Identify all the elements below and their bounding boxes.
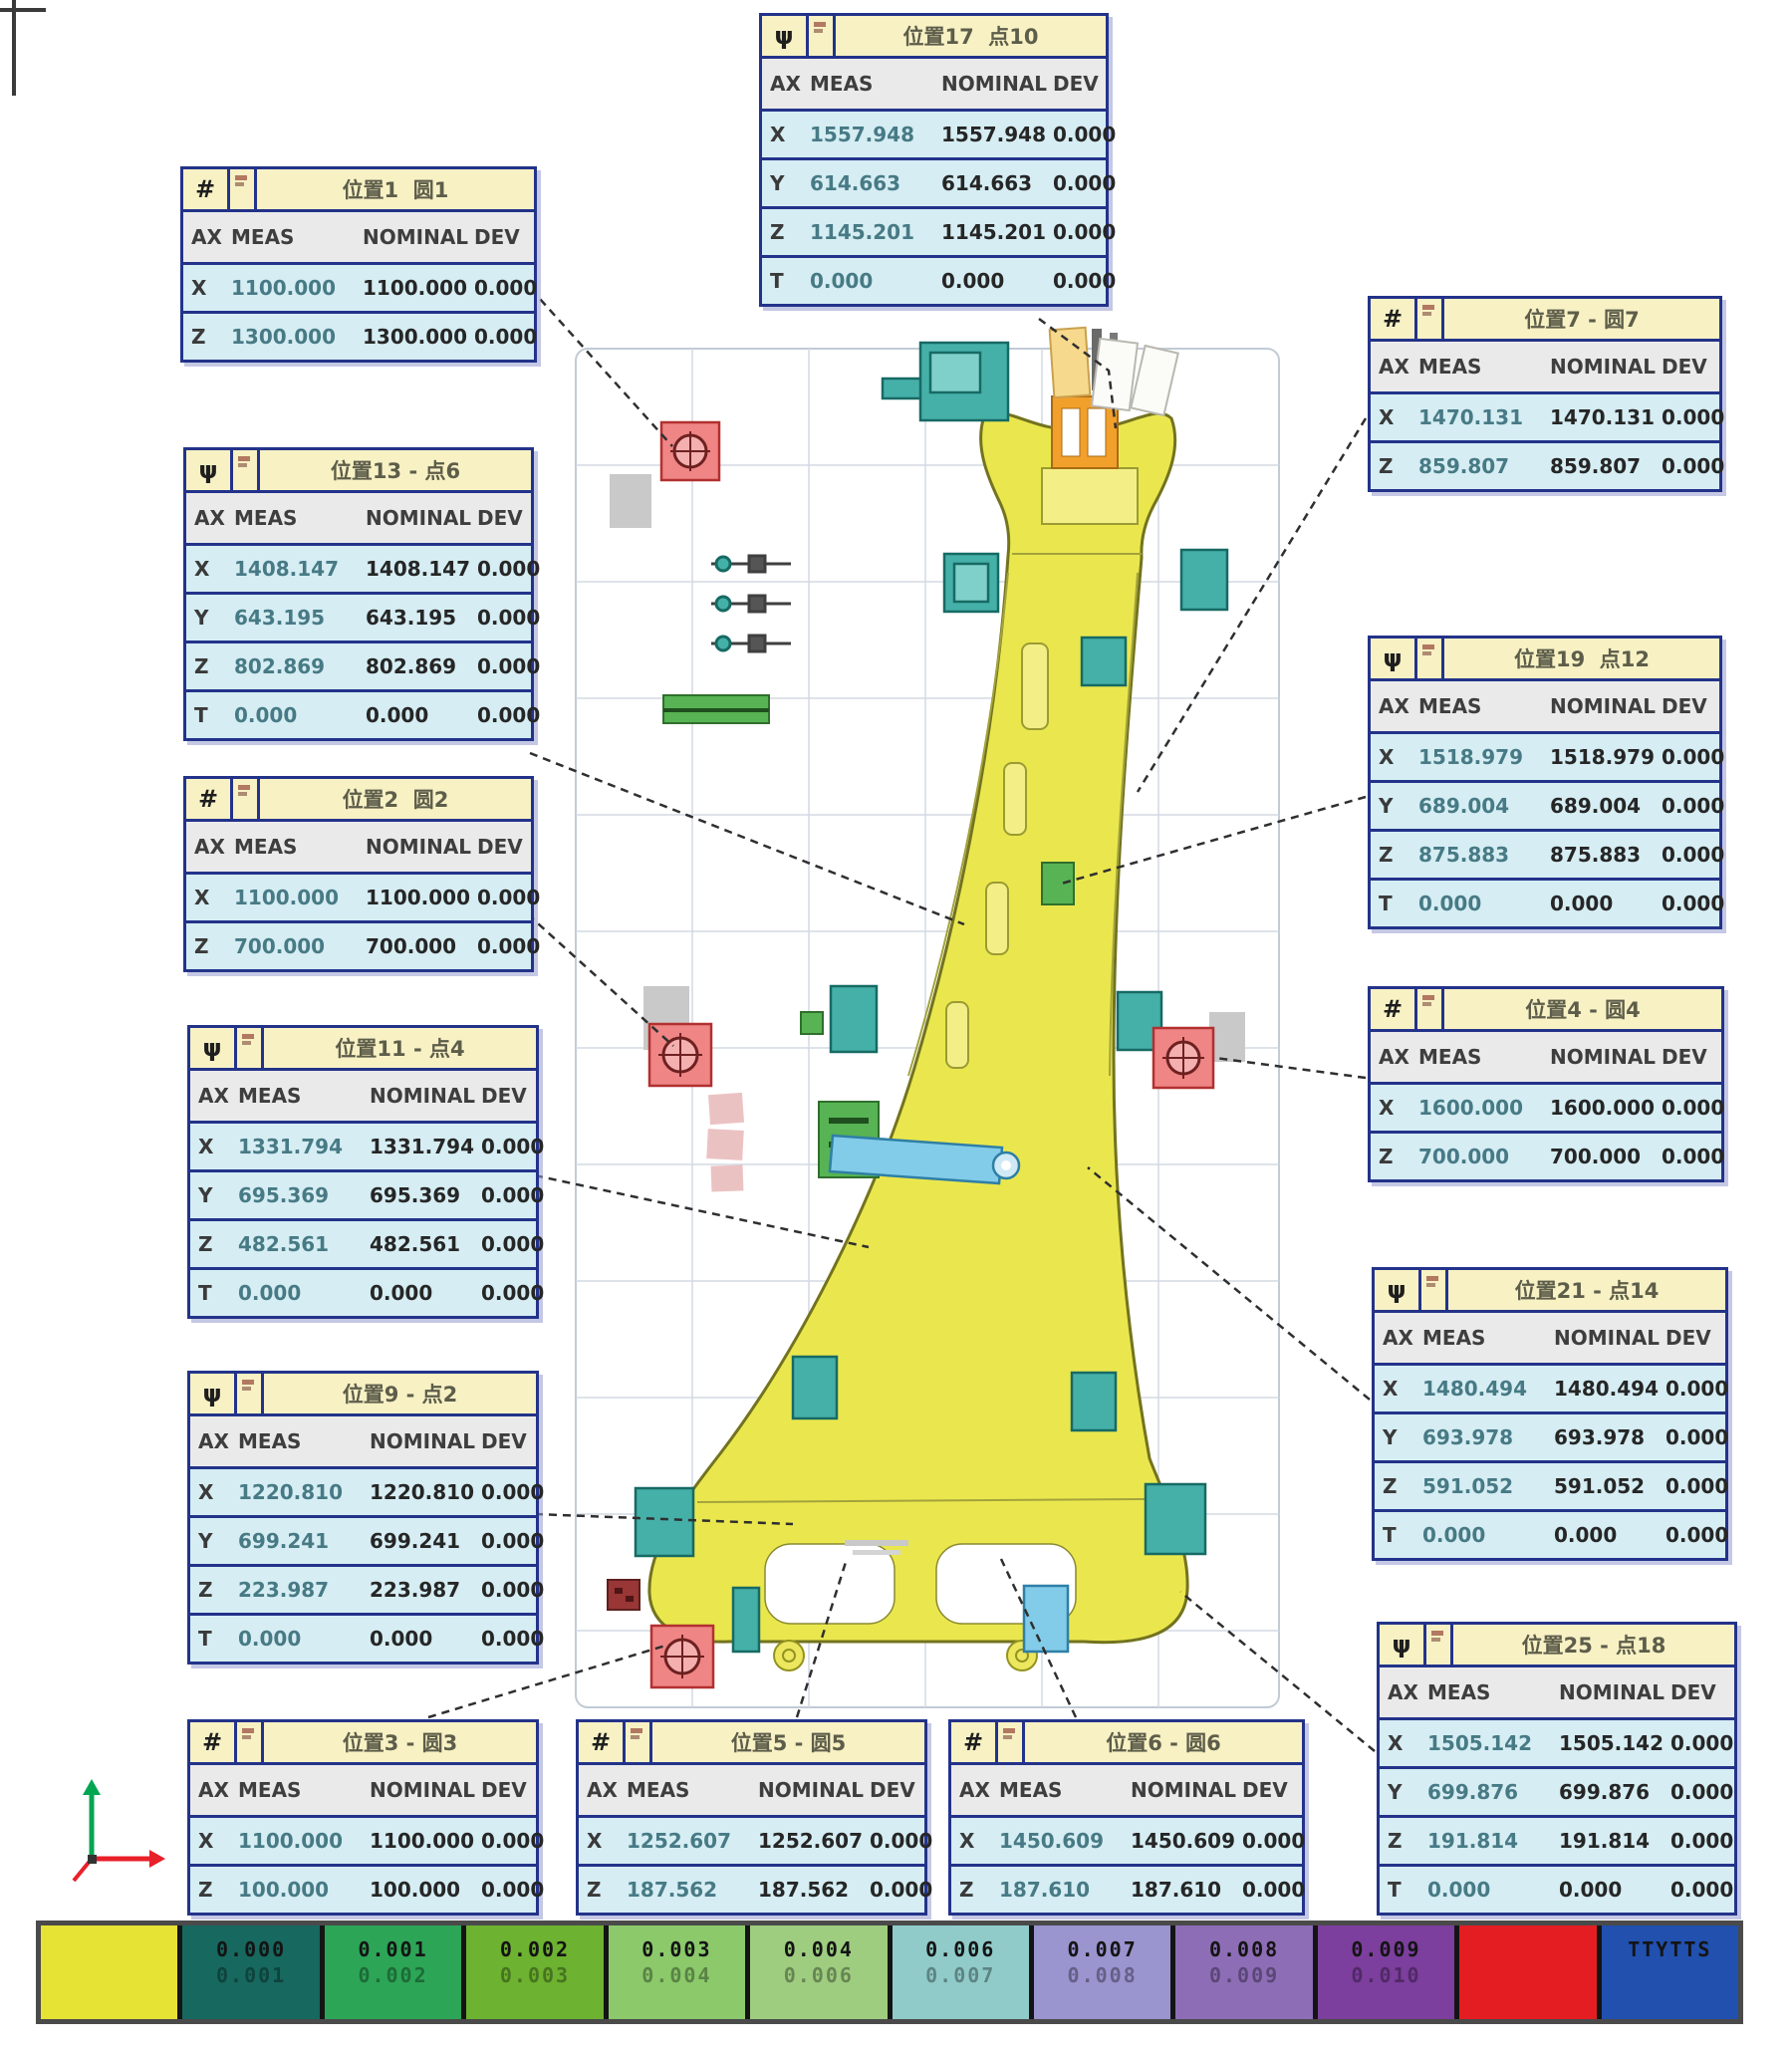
table-row: Z1300.0001300.0000.000 [183,314,534,360]
table-row: X1518.9791518.9790.000 [1371,734,1719,780]
column-header-meas: MEAS [1422,1326,1554,1350]
nominal-value: 1600.000 [1550,1096,1662,1120]
feature-type-icon: ψ [1375,1270,1418,1310]
nominal-value: 699.241 [370,1529,481,1553]
nominal-value: 1331.794 [370,1135,481,1158]
axis-label: Z [770,220,810,244]
table-title: 位置25 - 点18 [1453,1625,1734,1665]
column-header-meas: MEAS [627,1778,758,1802]
feature-flag-icon [1417,989,1441,1029]
measurement-table-pos1: #位置1 圆1AXMEASNOMINALDEVX1100.0001100.000… [180,166,537,363]
nominal-value: 191.814 [1559,1829,1670,1853]
feature-flag-icon [233,779,257,819]
column-header-nominal: NOMINAL [1550,1045,1662,1069]
nominal-value: 1100.000 [370,1829,481,1853]
dev-value: 0.000 [477,654,540,678]
feature-type-icon: ψ [1380,1625,1423,1665]
nominal-value: 482.561 [370,1232,481,1256]
nominal-value: 643.195 [366,606,477,630]
meas-value: 0.000 [238,1627,370,1651]
axis-label: Z [198,1578,238,1602]
meas-value: 802.869 [234,654,366,678]
column-header-ax: AX [198,1429,238,1453]
nominal-value: 0.000 [366,703,477,727]
table-title: 位置7 - 圆7 [1444,299,1719,339]
table-row: T0.0000.0000.000 [190,1616,536,1662]
table-header-row: AXMEASNOMINALDEV [186,493,531,543]
feature-flag-icon [1417,639,1441,678]
nominal-value: 0.000 [941,269,1053,293]
column-header-dev: DEV [477,506,523,530]
column-header-meas: MEAS [1418,355,1550,379]
feature-flag-icon [1417,299,1441,339]
table-row: T0.0000.0000.000 [1380,1867,1734,1913]
legend-range-low: 0.001 [358,1936,427,1962]
table-title-bar: ψ位置17 点10 [762,16,1106,56]
dev-value: 0.000 [477,557,540,581]
meas-value: 1220.810 [238,1480,370,1504]
nominal-value: 1100.000 [366,886,477,909]
column-header-meas: MEAS [238,1778,370,1802]
legend-range-low: 0.002 [500,1936,570,1962]
feature-type-icon: ψ [186,450,230,490]
nominal-value: 0.000 [1559,1878,1670,1902]
column-header-nominal: NOMINAL [370,1778,481,1802]
measurement-table-pos21: ψ位置21 - 点14AXMEASNOMINALDEVX1480.4941480… [1372,1267,1728,1561]
column-header-ax: AX [1383,1326,1422,1350]
frame-mark [0,8,46,12]
axis-label: X [191,276,231,300]
feature-type-icon: ψ [190,1374,234,1413]
legend-segment: 0.0000.001 [182,1925,319,2019]
table-title-bar: ψ位置19 点12 [1371,639,1719,678]
dev-value: 0.000 [474,325,537,349]
table-row: X1220.8101220.8100.000 [190,1469,536,1515]
meas-value: 1557.948 [810,123,941,146]
meas-value: 0.000 [1422,1523,1554,1547]
meas-value: 0.000 [1418,892,1550,915]
legend-range-low: 0.009 [1351,1936,1420,1962]
table-title: 位置3 - 圆3 [264,1722,536,1762]
table-header-row: AXMEASNOMINALDEV [1375,1313,1725,1363]
dev-value: 0.000 [477,606,540,630]
measurement-table-pos11: ψ位置11 - 点4AXMEASNOMINALDEVX1331.7941331.… [187,1025,539,1319]
color-scale-legend: 0.0000.0010.0010.0020.0020.0030.0030.004… [36,1921,1743,2024]
nominal-value: 802.869 [366,654,477,678]
legend-range-low: 0.008 [1209,1936,1279,1962]
feature-type-icon: ψ [1371,639,1414,678]
dev-value: 0.000 [1242,1829,1305,1853]
meas-value: 875.883 [1418,843,1550,867]
table-title-bar: #位置7 - 圆7 [1371,299,1719,339]
axis-label: Y [194,606,234,630]
legend-segment: 0.0070.008 [1034,1925,1170,2019]
legend-range-high: 0.009 [1209,1962,1279,1988]
axis-label: Y [1388,1780,1427,1804]
table-title-bar: #位置4 - 圆4 [1371,989,1721,1029]
nominal-value: 875.883 [1550,843,1662,867]
legend-range-low: TTYTTS [1628,1936,1711,1962]
meas-value: 100.000 [238,1878,370,1902]
column-header-dev: DEV [1670,1680,1726,1704]
axis-label: Z [194,654,234,678]
meas-value: 699.241 [238,1529,370,1553]
nominal-value: 1145.201 [941,220,1053,244]
measurement-table-pos17: ψ位置17 点10AXMEASNOMINALDEVX1557.9481557.9… [759,13,1109,307]
table-row: Y699.876699.8760.000 [1380,1769,1734,1815]
column-header-meas: MEAS [1418,694,1550,718]
axis-label: X [194,886,234,909]
dev-value: 0.000 [870,1878,932,1902]
nominal-value: 1220.810 [370,1480,481,1504]
table-title: 位置17 点10 [836,16,1106,56]
feature-flag-icon [998,1722,1022,1762]
dev-value: 0.000 [477,886,540,909]
column-header-meas: MEAS [231,225,363,249]
axis-label: Z [1379,454,1418,478]
column-header-dev: DEV [1053,72,1099,96]
table-row: Z187.610187.6100.000 [951,1867,1302,1913]
legend-range-high: 0.008 [1068,1962,1138,1988]
table-row: X1557.9481557.9480.000 [762,112,1106,157]
table-title-bar: #位置3 - 圆3 [190,1722,536,1762]
axis-label: Z [198,1878,238,1902]
table-row: X1331.7941331.7940.000 [190,1124,536,1169]
table-title-bar: ψ位置25 - 点18 [1380,1625,1734,1665]
table-header-row: AXMEASNOMINALDEV [1371,1032,1721,1082]
table-row: Y695.369695.3690.000 [190,1172,536,1218]
column-header-meas: MEAS [238,1084,370,1108]
column-header-ax: AX [1379,694,1418,718]
meas-value: 695.369 [238,1183,370,1207]
column-header-nominal: NOMINAL [366,835,477,859]
dev-value: 0.000 [481,1183,544,1207]
table-row: Z875.883875.8830.000 [1371,832,1719,878]
meas-value: 1100.000 [238,1829,370,1853]
legend-segment: TTYTTS [1602,1925,1738,2019]
table-title: 位置1 圆1 [257,169,534,209]
axis-label: X [587,1829,627,1853]
frame-mark [12,0,16,96]
table-title: 位置4 - 圆4 [1444,989,1721,1029]
meas-value: 1145.201 [810,220,941,244]
feature-flag-icon [1426,1625,1450,1665]
meas-value: 1252.607 [627,1829,758,1853]
feature-flag-icon [626,1722,649,1762]
measurement-table-pos9: ψ位置9 - 点2AXMEASNOMINALDEVX1220.8101220.8… [187,1371,539,1665]
table-row: X1470.1311470.1310.000 [1371,394,1719,440]
nominal-value: 591.052 [1554,1474,1665,1498]
table-header-row: AXMEASNOMINALDEV [183,212,534,262]
column-header-dev: DEV [477,835,523,859]
meas-value: 1100.000 [231,276,363,300]
legend-range-high: 0.007 [925,1962,995,1988]
dev-value: 0.000 [474,276,537,300]
axis-label: X [198,1480,238,1504]
column-header-ax: AX [770,72,810,96]
nominal-value: 1505.142 [1559,1731,1670,1755]
dev-value: 0.000 [1665,1523,1728,1547]
legend-segment: 0.0010.002 [325,1925,461,2019]
dev-value: 0.000 [481,1627,544,1651]
table-row: T0.0000.0000.000 [762,258,1106,304]
table-row: X1252.6071252.6070.000 [579,1818,924,1864]
column-header-ax: AX [959,1778,999,1802]
column-header-ax: AX [198,1084,238,1108]
meas-value: 1408.147 [234,557,366,581]
table-title-bar: ψ位置9 - 点2 [190,1374,536,1413]
column-header-ax: AX [198,1778,238,1802]
nominal-value: 1252.607 [758,1829,870,1853]
axis-label: Y [770,171,810,195]
table-header-row: AXMEASNOMINALDEV [190,1071,536,1121]
column-header-dev: DEV [1662,1045,1713,1069]
meas-value: 0.000 [234,703,366,727]
feature-type-icon: ψ [190,1028,234,1068]
meas-value: 1100.000 [234,886,366,909]
meas-value: 689.004 [1418,794,1550,818]
axis-label: X [194,557,234,581]
axis-label: T [770,269,810,293]
axis-label: X [1379,745,1418,769]
column-header-nominal: NOMINAL [370,1084,481,1108]
feature-flag-icon [237,1028,261,1068]
table-row: T0.0000.0000.000 [186,692,531,738]
meas-value: 0.000 [1427,1878,1559,1902]
table-row: X1505.1421505.1420.000 [1380,1720,1734,1766]
axis-label: T [1379,892,1418,915]
table-row: Z482.561482.5610.000 [190,1221,536,1267]
feature-flag-icon [809,16,833,56]
meas-value: 700.000 [1418,1145,1550,1168]
legend-range-high: 0.001 [216,1962,286,1988]
axis-label: Z [1383,1474,1422,1498]
meas-value: 693.978 [1422,1425,1554,1449]
column-header-ax: AX [191,225,231,249]
feature-type-icon: # [190,1722,234,1762]
column-header-ax: AX [587,1778,627,1802]
dev-value: 0.000 [1670,1878,1733,1902]
measurement-table-pos3: #位置3 - 圆3AXMEASNOMINALDEVX1100.0001100.0… [187,1719,539,1916]
table-title: 位置11 - 点4 [264,1028,536,1068]
table-row: X1100.0001100.0000.000 [190,1818,536,1864]
table-row: X1600.0001600.0000.000 [1371,1085,1721,1131]
feature-flag-icon [1421,1270,1445,1310]
column-header-nominal: NOMINAL [363,225,474,249]
nominal-value: 1470.131 [1550,405,1662,429]
cmm-report-page: #位置1 圆1AXMEASNOMINALDEVX1100.0001100.000… [0,0,1792,2050]
axis-label: T [1383,1523,1422,1547]
dev-value: 0.000 [481,1232,544,1256]
feature-type-icon: # [1371,299,1414,339]
meas-value: 1450.609 [999,1829,1131,1853]
table-title-bar: #位置6 - 圆6 [951,1722,1302,1762]
axis-label: Z [194,934,234,958]
axis-label: T [198,1627,238,1651]
table-header-row: AXMEASNOMINALDEV [190,1416,536,1466]
measurement-table-pos2: #位置2 圆2AXMEASNOMINALDEVX1100.0001100.000… [183,776,534,972]
legend-range-high: 0.002 [358,1962,427,1988]
table-row: Y699.241699.2410.000 [190,1518,536,1564]
dev-value: 0.000 [1662,794,1724,818]
column-header-nominal: NOMINAL [1559,1680,1670,1704]
feature-type-icon: # [579,1722,623,1762]
dev-value: 0.000 [1053,123,1116,146]
table-row: Z700.000700.0000.000 [1371,1134,1721,1179]
meas-value: 1600.000 [1418,1096,1550,1120]
nominal-value: 1450.609 [1131,1829,1242,1853]
nominal-value: 187.562 [758,1878,870,1902]
column-header-dev: DEV [481,1429,528,1453]
legend-range-low: 0.000 [216,1936,286,1962]
dev-value: 0.000 [477,703,540,727]
column-header-meas: MEAS [234,835,366,859]
column-header-ax: AX [1388,1680,1427,1704]
table-row: Z187.562187.5620.000 [579,1867,924,1913]
axis-label: Z [1379,843,1418,867]
feature-type-icon: # [951,1722,995,1762]
nominal-value: 689.004 [1550,794,1662,818]
nominal-value: 699.876 [1559,1780,1670,1804]
dev-value: 0.000 [1053,269,1116,293]
legend-segment: 0.0020.003 [466,1925,603,2019]
dev-value: 0.000 [481,1281,544,1305]
dev-value: 0.000 [481,1829,544,1853]
meas-value: 0.000 [810,269,941,293]
axis-label: X [770,123,810,146]
nominal-value: 223.987 [370,1578,481,1602]
red-stamp-watermark [706,1093,744,1192]
table-title: 位置6 - 圆6 [1025,1722,1302,1762]
column-header-meas: MEAS [999,1778,1131,1802]
feature-flag-icon [237,1722,261,1762]
column-header-meas: MEAS [810,72,941,96]
nominal-value: 1557.948 [941,123,1053,146]
dev-value: 0.000 [1670,1829,1733,1853]
table-header-row: AXMEASNOMINALDEV [762,59,1106,109]
axis-label: T [198,1281,238,1305]
axis-label: Z [587,1878,627,1902]
axis-label: X [1388,1731,1427,1755]
axis-label: T [1388,1878,1427,1902]
measurement-table-pos25: ψ位置25 - 点18AXMEASNOMINALDEVX1505.1421505… [1377,1622,1737,1916]
nominal-value: 1100.000 [363,276,474,300]
nominal-value: 1480.494 [1554,1377,1665,1401]
dev-value: 0.000 [1662,843,1724,867]
table-row: X1480.4941480.4940.000 [1375,1366,1725,1411]
table-header-row: AXMEASNOMINALDEV [190,1765,536,1815]
axis-label: X [1383,1377,1422,1401]
meas-value: 1300.000 [231,325,363,349]
feature-flag-icon [237,1374,261,1413]
table-row: Z100.000100.0000.000 [190,1867,536,1913]
table-row: X1450.6091450.6090.000 [951,1818,1302,1864]
column-header-meas: MEAS [238,1429,370,1453]
meas-value: 1505.142 [1427,1731,1559,1755]
meas-value: 191.814 [1427,1829,1559,1853]
axis-label: X [959,1829,999,1853]
table-title-bar: ψ位置11 - 点4 [190,1028,536,1068]
meas-value: 0.000 [238,1281,370,1305]
dev-value: 0.000 [870,1829,932,1853]
table-row: Z191.814191.8140.000 [1380,1818,1734,1864]
axis-label: Z [1379,1145,1418,1168]
nominal-value: 0.000 [1554,1523,1665,1547]
table-title-bar: #位置5 - 圆5 [579,1722,924,1762]
legend-range-high: 0.010 [1351,1962,1420,1988]
column-header-meas: MEAS [1427,1680,1559,1704]
legend-range-low: 0.004 [784,1936,854,1962]
dev-value: 0.000 [1662,892,1724,915]
column-header-dev: DEV [870,1778,916,1802]
dev-value: 0.000 [1665,1474,1728,1498]
dev-value: 0.000 [1662,1145,1724,1168]
meas-value: 1518.979 [1418,745,1550,769]
nominal-value: 0.000 [370,1627,481,1651]
meas-value: 699.876 [1427,1780,1559,1804]
dev-value: 0.000 [481,1135,544,1158]
dev-value: 0.000 [1662,405,1724,429]
meas-value: 700.000 [234,934,366,958]
axis-label: Y [1383,1425,1422,1449]
table-row: T0.0000.0000.000 [1371,881,1719,926]
table-row: Z700.000700.0000.000 [186,923,531,969]
table-title: 位置19 点12 [1444,639,1719,678]
nominal-value: 614.663 [941,171,1053,195]
legend-segment [41,1925,177,2019]
column-header-nominal: NOMINAL [941,72,1053,96]
column-header-dev: DEV [481,1778,528,1802]
column-header-dev: DEV [1662,355,1711,379]
table-header-row: AXMEASNOMINALDEV [951,1765,1302,1815]
dev-value: 0.000 [1665,1377,1728,1401]
meas-value: 643.195 [234,606,366,630]
dev-value: 0.000 [1662,454,1724,478]
nominal-value: 0.000 [1550,892,1662,915]
nominal-value: 0.000 [370,1281,481,1305]
meas-value: 614.663 [810,171,941,195]
meas-value: 187.610 [999,1878,1131,1902]
measurement-table-pos7: #位置7 - 圆7AXMEASNOMINALDEVX1470.1311470.1… [1368,296,1722,492]
nominal-value: 693.978 [1554,1425,1665,1449]
meas-value: 1470.131 [1418,405,1550,429]
table-row: Z223.987223.9870.000 [190,1567,536,1613]
dev-value: 0.000 [1670,1780,1733,1804]
table-header-row: AXMEASNOMINALDEV [1371,681,1719,731]
nominal-value: 700.000 [1550,1145,1662,1168]
column-header-nominal: NOMINAL [1554,1326,1665,1350]
dev-value: 0.000 [1665,1425,1728,1449]
dev-value: 0.000 [1662,1096,1724,1120]
column-header-meas: MEAS [1418,1045,1550,1069]
nominal-value: 1518.979 [1550,745,1662,769]
table-row: X1408.1471408.1470.000 [186,546,531,592]
column-header-nominal: NOMINAL [758,1778,870,1802]
axis-label: Z [1388,1829,1427,1853]
dev-value: 0.000 [481,1578,544,1602]
meas-value: 1331.794 [238,1135,370,1158]
axis-label: X [1379,405,1418,429]
table-row: T0.0000.0000.000 [190,1270,536,1316]
legend-segment: 0.0040.006 [750,1925,887,2019]
column-header-meas: MEAS [234,506,366,530]
column-header-dev: DEV [1662,694,1711,718]
table-row: Z591.052591.0520.000 [1375,1463,1725,1509]
table-title: 位置5 - 圆5 [652,1722,924,1762]
meas-value: 482.561 [238,1232,370,1256]
table-row: X1100.0001100.0000.000 [183,265,534,311]
feature-type-icon: # [186,779,230,819]
